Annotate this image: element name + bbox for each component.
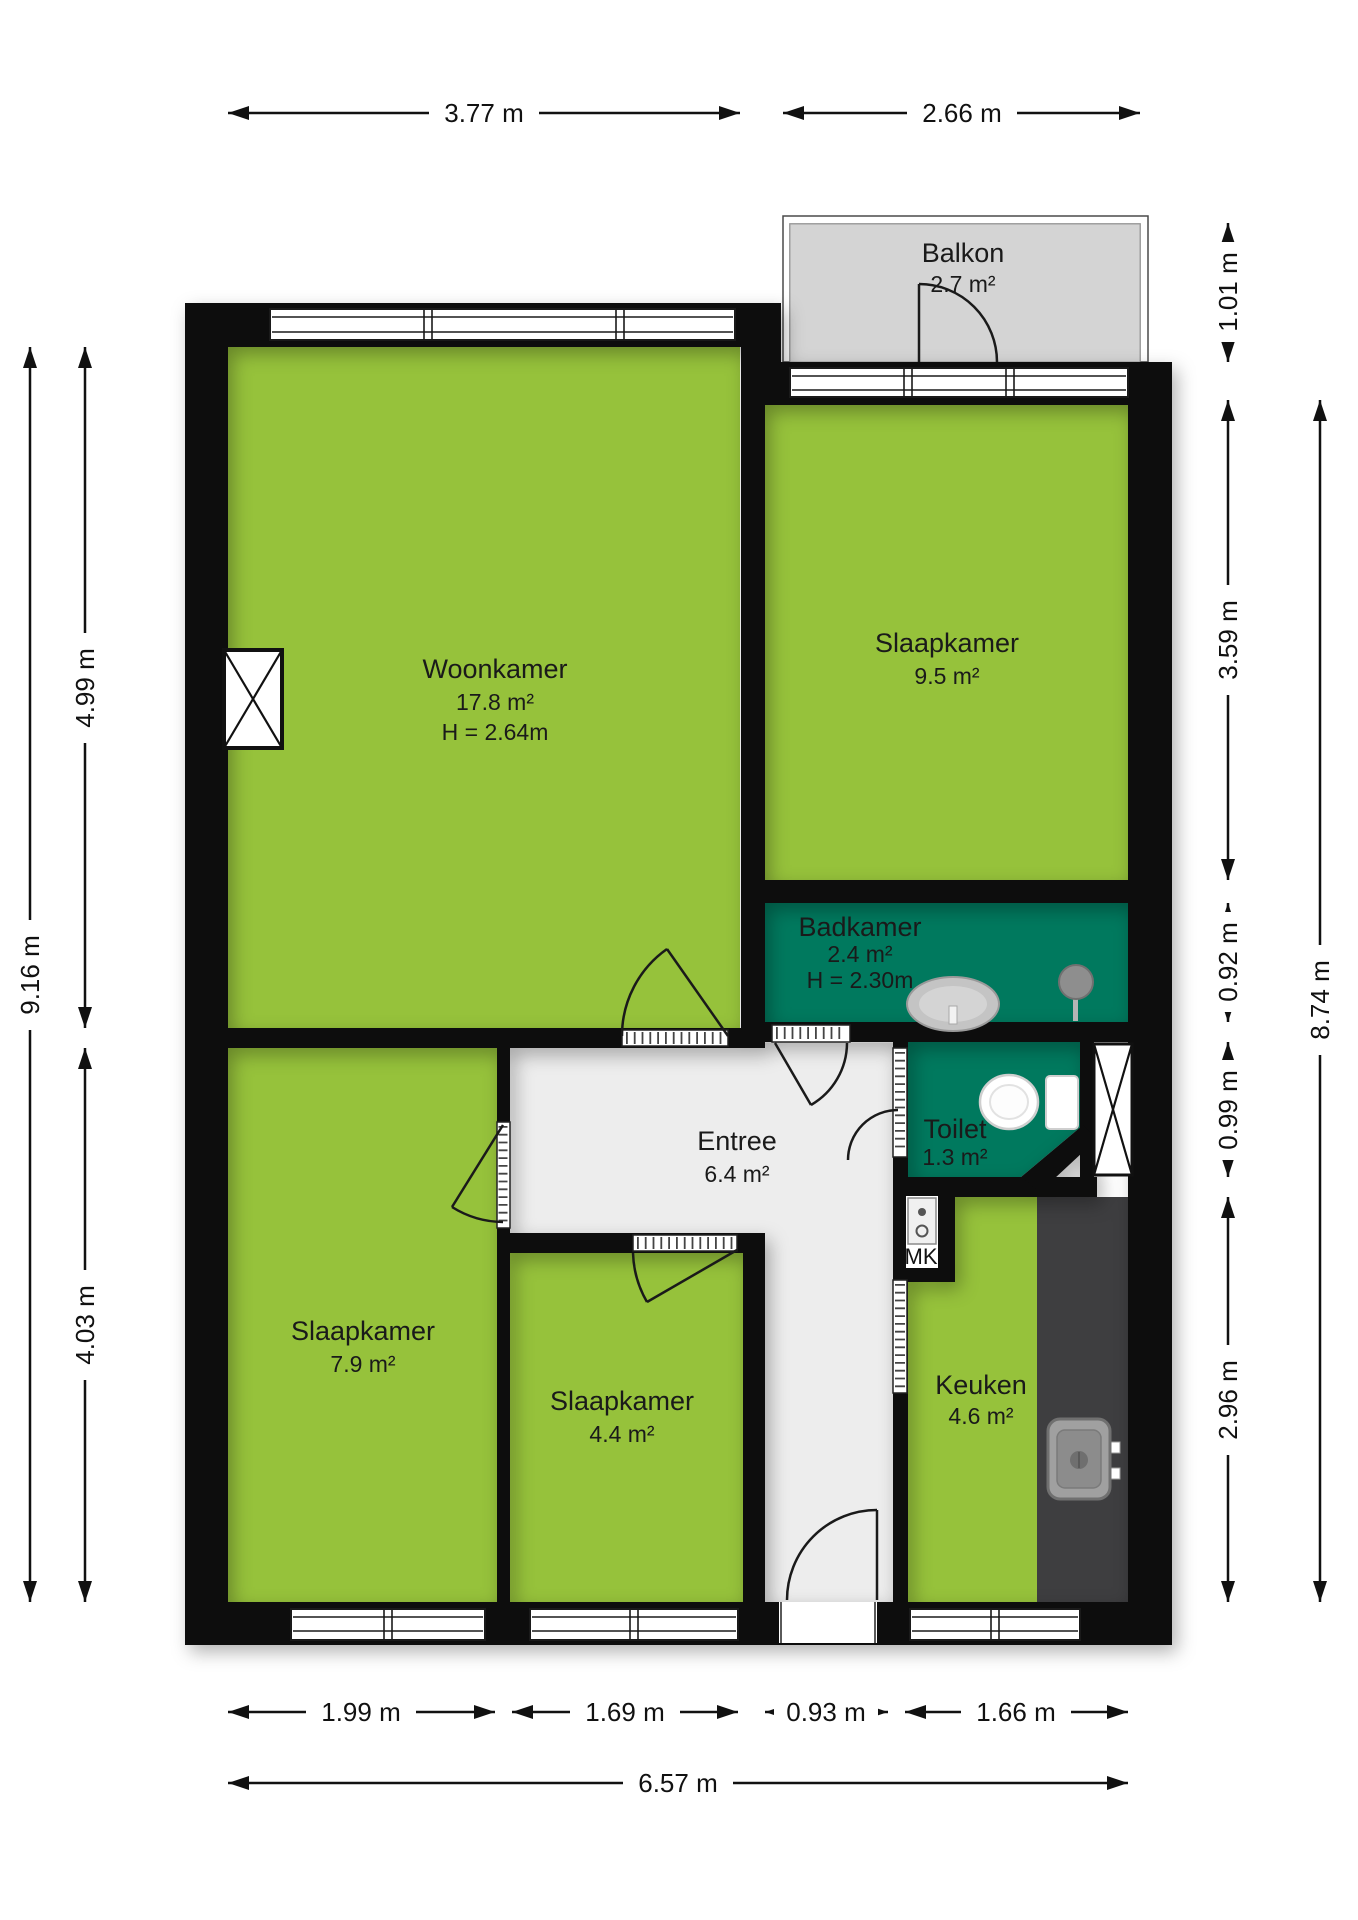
dimension-label: 3.59 m [1213,600,1243,680]
room-badkamer-area: 2.4 m² [827,941,893,967]
door-band-toilet [893,1048,907,1157]
door-band-slaapkamer3 [633,1235,737,1251]
wall-woonkamer-right [741,347,765,1043]
room-slaapkamer3-name: Slaapkamer [550,1386,694,1416]
room-slaapkamer2-name: Slaapkamer [291,1316,435,1346]
wall-slaapkamer3-right [743,1233,765,1602]
dimension-label: 2.66 m [922,98,1002,128]
room-slaapkamer1-area: 9.5 m² [914,663,980,689]
kitchen-sink-icon [1048,1419,1120,1499]
room-woonkamer-name: Woonkamer [422,654,567,684]
dimension-top-1: 3.77 m [228,98,740,128]
window-keuken [910,1609,1080,1640]
dimension-label: 1.69 m [585,1697,665,1727]
dimension-label: 0.92 m [1213,922,1243,1002]
dimension-bottom-3: 0.93 m [765,1697,888,1727]
room-keuken-name: Keuken [935,1370,1027,1400]
dimension-label: 3.77 m [444,98,524,128]
dimension-label: 0.93 m [786,1697,866,1727]
dimension-right-3: 0.92 m [1213,903,1243,1022]
room-slaapkamer2-area: 7.9 m² [330,1351,396,1377]
room-woonkamer-area: 17.8 m² [456,689,534,715]
dimension-label: 8.74 m [1305,960,1335,1040]
window-slaapkamer2 [291,1609,485,1640]
dimension-top-2: 2.66 m [783,98,1140,128]
dimension-label: 2.96 m [1213,1360,1243,1440]
dimension-label: 0.99 m [1213,1070,1243,1150]
dimension-label: 4.03 m [70,1285,100,1365]
shaft-cross-icon [1094,1044,1132,1175]
bath-sink-icon [907,977,999,1031]
shaft-cross-icon [224,650,282,748]
room-toilet-name: Toilet [923,1114,987,1144]
room-entree-area: 6.4 m² [704,1161,770,1187]
dimension-left-2: 4.03 m [70,1048,100,1602]
room-badkamer-height: H = 2.30m [807,967,914,993]
room-entree-name: Entree [697,1126,777,1156]
kitchen-counter [1037,1197,1128,1602]
room-badkamer-name: Badkamer [798,912,921,942]
room-woonkamer-floor [228,347,740,1028]
dimension-right-4: 0.99 m [1213,1042,1243,1177]
door-band-keuken [893,1280,907,1393]
wall-toilet-right [1080,1042,1094,1177]
dimension-left-1: 4.99 m [70,347,100,1028]
front-door-opening [779,1602,877,1643]
wall-right [1128,362,1172,1645]
wall-slaapkamer2-right [497,1028,510,1602]
dimension-bottom-1: 1.99 m [228,1697,495,1727]
wall-slaapkamer1-bottom [741,880,1128,903]
room-woonkamer-height: H = 2.64m [442,719,549,745]
room-toilet-area: 1.3 m² [922,1144,988,1170]
dimension-label: 1.01 m [1213,252,1243,332]
window-slaapkamer3 [530,1609,738,1640]
dimension-right-1: 1.01 m [1213,223,1243,362]
dimension-bottom-4: 1.66 m [905,1697,1128,1727]
meterkast-label: MK [905,1244,938,1269]
dimension-right-total: 8.74 m [1305,400,1335,1602]
door-band-woonkamer [622,1030,728,1046]
room-balkon-name: Balkon [922,238,1005,268]
wall-left [185,303,228,1645]
room-keuken-area: 4.6 m² [948,1403,1014,1429]
room-balkon-area: 2.7 m² [930,271,996,297]
wall-toilet-bottom [893,1177,1097,1197]
dimension-right-2: 3.59 m [1213,400,1243,880]
dimension-label: 1.66 m [976,1697,1056,1727]
floorplan-page: Balkon 2.7 m² Woonkamer 17.8 m² H = 2.64… [0,0,1358,1920]
room-slaapkamer1-name: Slaapkamer [875,628,1019,658]
toilet-icon [980,1075,1078,1129]
dimension-left-total: 9.16 m [15,347,45,1602]
dimension-bottom-total: 6.57 m [228,1768,1128,1798]
dimension-label: 9.16 m [15,935,45,1015]
dimension-label: 4.99 m [70,648,100,728]
window-balcony-wall [790,368,1128,397]
dimension-label: 6.57 m [638,1768,718,1798]
dimension-bottom-2: 1.69 m [512,1697,738,1727]
window-woonkamer-top [270,309,735,340]
dimension-label: 1.99 m [321,1697,401,1727]
room-slaapkamer3-area: 4.4 m² [589,1421,655,1447]
floorplan-svg: Balkon 2.7 m² Woonkamer 17.8 m² H = 2.64… [0,0,1358,1920]
door-band-slaapkamer2 [497,1122,510,1228]
door-band-badkamer [772,1025,850,1042]
dimension-right-5: 2.96 m [1213,1197,1243,1602]
